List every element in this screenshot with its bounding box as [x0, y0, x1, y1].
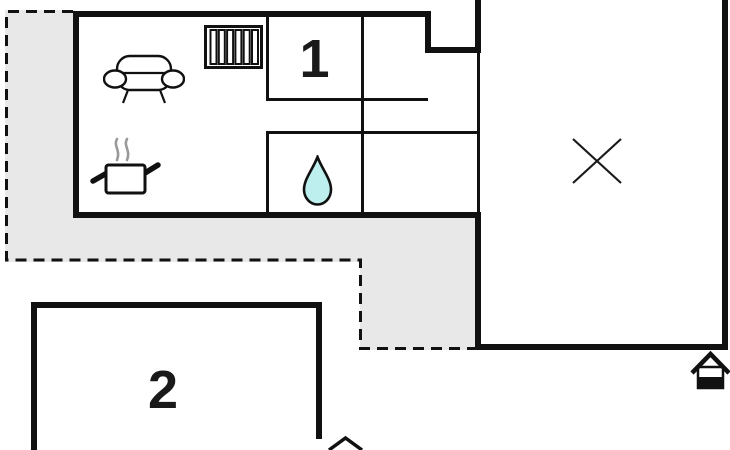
cooking-pot-icon — [86, 136, 162, 198]
building-wall-left — [73, 11, 79, 218]
building-wall-step-horizontal — [425, 47, 481, 53]
room2-wall-left — [31, 302, 37, 450]
entrance-house-icon — [690, 350, 730, 391]
right-room-wall-left-middle — [477, 53, 480, 212]
floor-plan: 1 2 — [0, 0, 730, 450]
radiator-icon — [204, 25, 263, 69]
sofa-icon — [103, 52, 185, 107]
building-wall-bottom — [73, 212, 481, 218]
room2-label: 2 — [110, 340, 216, 440]
room2-wall-top — [31, 302, 322, 308]
room1-label: 1 — [267, 17, 362, 100]
entrance-house-partial-icon — [327, 436, 364, 450]
right-room-wall-left-lower — [475, 212, 481, 350]
partition-horizontal — [266, 131, 477, 134]
building-wall-top — [73, 11, 431, 17]
right-room-wall-left-upper — [475, 0, 481, 53]
cross-marker-icon — [570, 135, 624, 187]
water-drop-icon — [301, 155, 334, 207]
room2-wall-right — [316, 302, 322, 439]
bathroom-left-border — [266, 131, 269, 212]
right-room-wall-right — [722, 0, 728, 350]
